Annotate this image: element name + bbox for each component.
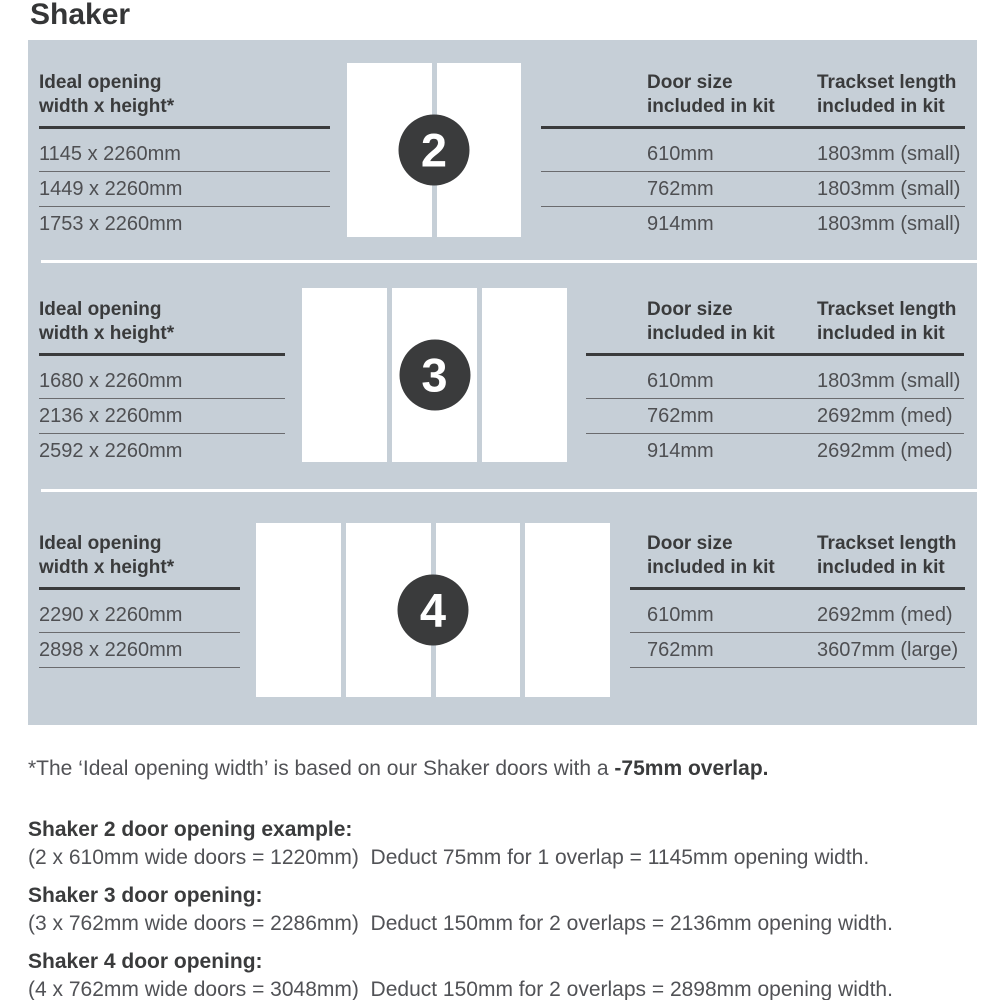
opening-size-table-4-door: Ideal opening width x height* 2290 x 226… bbox=[39, 532, 240, 668]
opening-value: 1449 x 2260mm bbox=[39, 178, 182, 201]
page-title: Shaker bbox=[30, 0, 130, 32]
opening-row: 1680 x 2260mm bbox=[39, 356, 285, 399]
door-size-value: 914mm bbox=[647, 213, 817, 236]
opening-header-line2: width x height* bbox=[39, 323, 174, 344]
door-size-value: 610mm bbox=[647, 604, 817, 627]
trackset-value: 1803mm (small) bbox=[817, 213, 965, 236]
door-size-value: 762mm bbox=[647, 178, 817, 201]
opening-value: 2898 x 2260mm bbox=[39, 639, 182, 662]
trackset-column-header: Trackset length included in kit bbox=[817, 532, 965, 580]
trackset-value: 2692mm (med) bbox=[817, 440, 964, 463]
door-size-header-line1: Door size bbox=[647, 533, 733, 554]
opening-value: 2290 x 2260mm bbox=[39, 604, 182, 627]
trackset-header-line1: Trackset length bbox=[817, 72, 956, 93]
door-size-header-line2: included in kit bbox=[647, 96, 775, 117]
kit-contents-header: Door size included in kit Trackset lengt… bbox=[630, 532, 965, 590]
trackset-value: 2692mm (med) bbox=[817, 405, 964, 428]
opening-value: 2136 x 2260mm bbox=[39, 405, 182, 428]
opening-header-line1: Ideal opening bbox=[39, 533, 161, 554]
door-size-header-line1: Door size bbox=[647, 72, 733, 93]
kit-row: 914mm1803mm (small) bbox=[541, 207, 965, 241]
opening-size-table-3-door: Ideal opening width x height* 1680 x 226… bbox=[39, 298, 285, 468]
opening-row: 2290 x 2260mm bbox=[39, 590, 240, 633]
kit-size-panel: Ideal opening width x height* 1145 x 226… bbox=[28, 40, 977, 725]
kit-row: 610mm2692mm (med) bbox=[630, 590, 965, 633]
opening-column-header: Ideal opening width x height* bbox=[39, 298, 285, 356]
example-body-4-door: (4 x 762mm wide doors = 3048mm) Deduct 1… bbox=[28, 978, 893, 1000]
door-size-value: 610mm bbox=[647, 143, 817, 166]
door-panel bbox=[256, 523, 341, 697]
kit-row: 914mm2692mm (med) bbox=[586, 434, 964, 468]
door-panel bbox=[302, 288, 387, 462]
example-heading-4-door: Shaker 4 door opening: bbox=[28, 950, 263, 974]
door-size-header-line1: Door size bbox=[647, 299, 733, 320]
trackset-header-line1: Trackset length bbox=[817, 299, 956, 320]
kit-row: 762mm2692mm (med) bbox=[586, 399, 964, 434]
trackset-header-line1: Trackset length bbox=[817, 533, 956, 554]
kit-row: 762mm3607mm (large) bbox=[630, 633, 965, 668]
opening-header-line2: width x height* bbox=[39, 96, 174, 117]
door-size-column-header: Door size included in kit bbox=[647, 532, 817, 580]
door-count-badge: 2 bbox=[399, 115, 470, 186]
trackset-column-header: Trackset length included in kit bbox=[817, 71, 965, 119]
door-count: 2 bbox=[421, 123, 447, 178]
footnote: *The ‘Ideal opening width’ is based on o… bbox=[28, 757, 769, 781]
opening-row: 1449 x 2260mm bbox=[39, 172, 330, 207]
trackset-header-line2: included in kit bbox=[817, 557, 945, 578]
opening-value: 1680 x 2260mm bbox=[39, 370, 182, 393]
opening-row: 1145 x 2260mm bbox=[39, 129, 330, 172]
kit-row: 610mm1803mm (small) bbox=[586, 356, 964, 399]
example-body-2-door: (2 x 610mm wide doors = 1220mm) Deduct 7… bbox=[28, 846, 869, 870]
opening-row: 2592 x 2260mm bbox=[39, 434, 285, 468]
trackset-header-line2: included in kit bbox=[817, 96, 945, 117]
opening-row: 1753 x 2260mm bbox=[39, 207, 330, 241]
kit-section-3-door: Ideal opening width x height* 1680 x 226… bbox=[28, 263, 977, 490]
opening-value: 1145 x 2260mm bbox=[39, 143, 181, 166]
door-size-column-header: Door size included in kit bbox=[647, 71, 817, 119]
opening-header-line1: Ideal opening bbox=[39, 299, 161, 320]
door-count: 3 bbox=[421, 348, 447, 403]
example-body-3-door: (3 x 762mm wide doors = 2286mm) Deduct 1… bbox=[28, 912, 893, 936]
kit-section-2-door: Ideal opening width x height* 1145 x 226… bbox=[28, 40, 977, 261]
kit-row: 762mm1803mm (small) bbox=[541, 172, 965, 207]
door-size-value: 610mm bbox=[647, 370, 817, 393]
door-count-badge: 3 bbox=[399, 340, 470, 411]
footnote-text: *The ‘Ideal opening width’ is based on o… bbox=[28, 757, 614, 780]
door-illustration-3-door: 3 bbox=[302, 288, 567, 462]
door-size-header-line2: included in kit bbox=[647, 557, 775, 578]
door-size-header-line2: included in kit bbox=[647, 323, 775, 344]
kit-contents-header: Door size included in kit Trackset lengt… bbox=[586, 298, 964, 356]
trackset-value: 2692mm (med) bbox=[817, 604, 965, 627]
opening-value: 1753 x 2260mm bbox=[39, 213, 182, 236]
kit-contents-table-4-door: Door size included in kit Trackset lengt… bbox=[630, 532, 965, 668]
door-panel bbox=[482, 288, 567, 462]
trackset-value: 1803mm (small) bbox=[817, 143, 965, 166]
kit-row: 610mm1803mm (small) bbox=[541, 129, 965, 172]
door-size-value: 762mm bbox=[647, 639, 817, 662]
example-heading-2-door: Shaker 2 door opening example: bbox=[28, 818, 352, 842]
kit-contents-table-2-door: Door size included in kit Trackset lengt… bbox=[541, 71, 965, 241]
door-count-badge: 4 bbox=[398, 575, 469, 646]
footnote-bold-text: -75mm overlap. bbox=[614, 757, 768, 780]
trackset-value: 1803mm (small) bbox=[817, 178, 965, 201]
door-size-value: 914mm bbox=[647, 440, 817, 463]
opening-column-header: Ideal opening width x height* bbox=[39, 532, 240, 590]
door-count: 4 bbox=[420, 583, 446, 638]
kit-section-4-door: Ideal opening width x height* 2290 x 226… bbox=[28, 492, 977, 725]
example-heading-3-door: Shaker 3 door opening: bbox=[28, 884, 263, 908]
opening-size-table-2-door: Ideal opening width x height* 1145 x 226… bbox=[39, 71, 330, 241]
opening-value: 2592 x 2260mm bbox=[39, 440, 182, 463]
opening-header-line2: width x height* bbox=[39, 557, 174, 578]
door-panel bbox=[525, 523, 610, 697]
opening-row: 2136 x 2260mm bbox=[39, 399, 285, 434]
trackset-value: 3607mm (large) bbox=[817, 639, 965, 662]
door-illustration-4-door: 4 bbox=[256, 523, 610, 697]
opening-header-line1: Ideal opening bbox=[39, 72, 161, 93]
opening-row: 2898 x 2260mm bbox=[39, 633, 240, 668]
trackset-column-header: Trackset length included in kit bbox=[817, 298, 964, 346]
door-illustration-2-door: 2 bbox=[347, 63, 521, 237]
trackset-value: 1803mm (small) bbox=[817, 370, 964, 393]
door-size-value: 762mm bbox=[647, 405, 817, 428]
door-size-column-header: Door size included in kit bbox=[647, 298, 817, 346]
shaker-spec-page: Shaker Ideal opening width x height* 114… bbox=[0, 0, 1000, 1000]
trackset-header-line2: included in kit bbox=[817, 323, 945, 344]
kit-contents-table-3-door: Door size included in kit Trackset lengt… bbox=[586, 298, 964, 468]
opening-column-header: Ideal opening width x height* bbox=[39, 71, 330, 129]
kit-contents-header: Door size included in kit Trackset lengt… bbox=[541, 71, 965, 129]
